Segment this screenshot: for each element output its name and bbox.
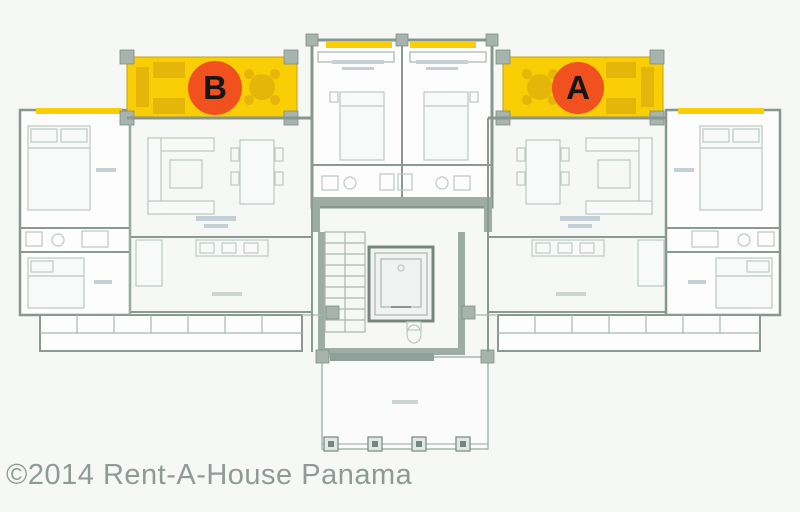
unit-a-terrace-strip [498, 315, 760, 351]
corner-bracket [326, 306, 339, 319]
unit-a-bedroom-block [666, 108, 780, 315]
unit-a-kitchen [488, 240, 666, 312]
unit-b-bedroom-block [20, 108, 130, 315]
kitchen-counter-icon [532, 240, 664, 286]
floor-plan-drawing: B [0, 0, 800, 512]
bed-icon [716, 258, 772, 308]
bed-icon [700, 126, 762, 210]
kitchen-counter-icon [136, 240, 268, 286]
corner-bracket [306, 34, 318, 46]
unit-b-terrace-strip [40, 315, 302, 351]
bed-icon [28, 126, 90, 210]
sofa-icon [148, 138, 214, 214]
unit-b-label: B [203, 69, 227, 106]
dining-table-icon [231, 140, 283, 204]
sofa-icon [586, 138, 652, 214]
unit-b-living-room [127, 118, 312, 237]
corner-bracket [120, 50, 134, 64]
window-strip [678, 108, 764, 114]
elevator-icon [369, 247, 433, 321]
stairs-elevator-core [318, 232, 475, 355]
corner-bracket [316, 350, 329, 363]
toilet-icon [407, 322, 421, 343]
watermark: ©2014 Rent-A-House Panama [6, 459, 413, 491]
dining-table-icon [517, 140, 569, 204]
corner-bracket [650, 50, 664, 64]
corner-bracket [284, 50, 298, 64]
corner-bracket [396, 34, 408, 46]
window-strip [326, 41, 392, 48]
unit-b-kitchen [130, 240, 312, 312]
lobby [316, 350, 494, 451]
corner-bracket [496, 50, 510, 64]
corner-bracket [462, 306, 475, 319]
balcony-a: A [496, 50, 664, 125]
unit-a-label: A [566, 69, 590, 106]
center-bedrooms-block [306, 34, 498, 232]
corner-bracket [486, 34, 498, 46]
floor-plan-image: B [0, 0, 800, 512]
bed-icon [28, 258, 84, 308]
window-strip [410, 41, 476, 48]
window-strip [36, 108, 122, 114]
balcony-b: B [120, 50, 298, 125]
